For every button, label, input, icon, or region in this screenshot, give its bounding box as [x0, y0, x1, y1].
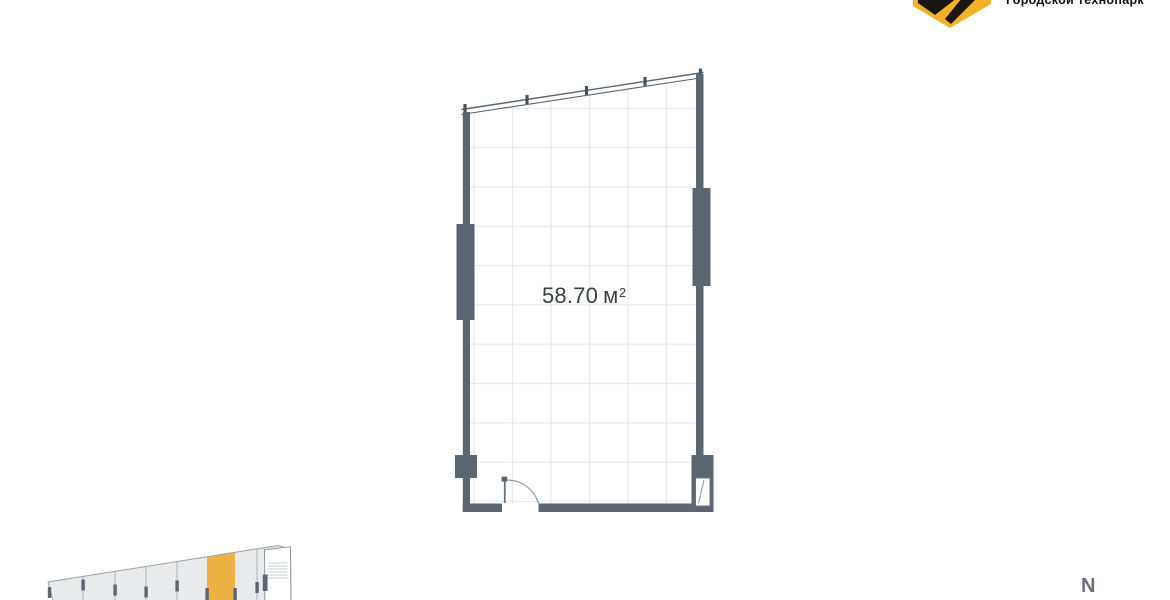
column-right-bottom — [692, 455, 714, 478]
area-value: 58.70 — [542, 283, 598, 308]
wall-bottom-left-segment — [463, 504, 502, 513]
logo-brand-text: Городской технопарк — [1006, 0, 1144, 7]
floorplan-viewer-page: Городской технопарк 58.70м2 N — [0, 0, 1170, 600]
unit-area-label: 58.70м2 — [542, 283, 626, 309]
area-superscript: 2 — [619, 285, 626, 300]
wall-bottom-right-segment — [539, 504, 714, 513]
minimap-outline — [48, 546, 291, 600]
window-facade — [462, 69, 704, 115]
shaft-door — [696, 478, 711, 506]
minimap-highlighted-unit[interactable] — [207, 553, 235, 600]
column-right — [693, 188, 711, 286]
compass-north-label: N — [1081, 575, 1095, 598]
wall-right — [696, 74, 704, 512]
column-left — [457, 224, 475, 320]
floor-overview-minimap[interactable] — [48, 546, 291, 600]
area-unit: м — [603, 283, 618, 308]
minimap-stair-core — [263, 547, 291, 600]
shaft-flank-left — [692, 478, 696, 512]
logo-mark-icon[interactable] — [913, 0, 991, 28]
entrance-door-swing — [502, 477, 539, 504]
column-left-bottom — [455, 455, 477, 478]
door-hinge-cap — [502, 477, 508, 482]
door-arc — [507, 480, 539, 504]
